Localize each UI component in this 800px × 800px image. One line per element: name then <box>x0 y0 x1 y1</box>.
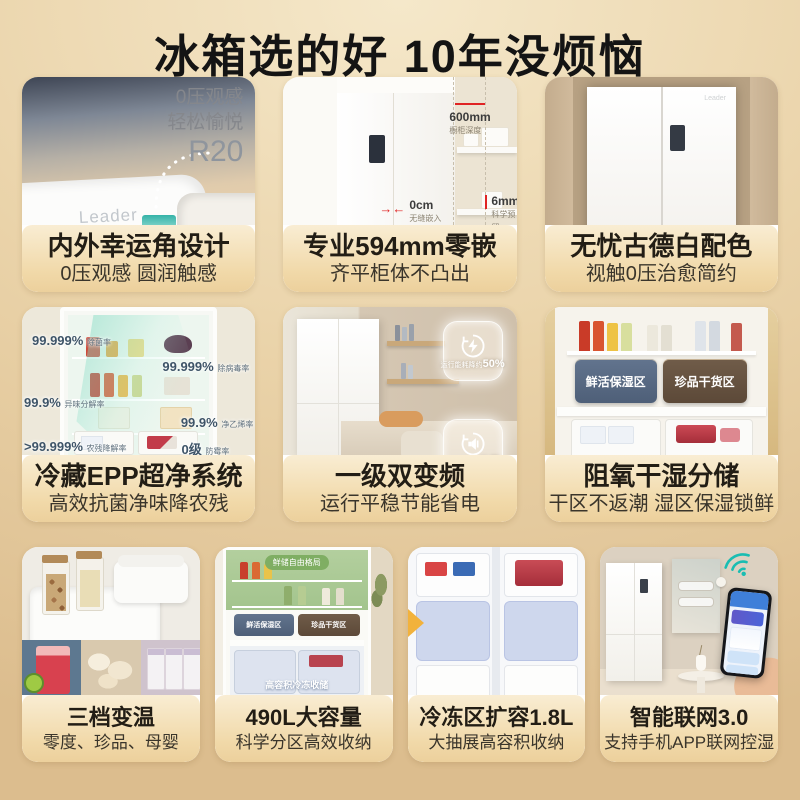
noise-badge: 运行约36分贝 <box>443 419 503 455</box>
cabinet-edge <box>768 307 778 455</box>
feature-title: 内外幸运角设计 <box>48 231 230 261</box>
stat-label: 除病毒率 <box>217 364 249 373</box>
bottle <box>593 321 604 351</box>
energy-badge-text: 运行能耗降约50% <box>441 360 505 370</box>
photo-breast-milk-bags <box>141 640 200 695</box>
milk-bag <box>165 648 183 690</box>
card-dry-wet-storage: 鲜活保湿区 珍品干货区 阻氧干湿分储 干区不返潮 湿区保湿锁鲜 <box>545 307 778 522</box>
photo-strip <box>22 640 200 695</box>
wood-shelf <box>387 379 459 384</box>
dry-zone-label: 珍品干货区 <box>298 614 360 636</box>
caption-epp-clean: 冷藏EPP超净系统 高效抗菌净味降农残 <box>22 455 255 522</box>
wall-shelf <box>457 147 517 153</box>
freezer-bin <box>504 553 578 597</box>
badge-value: 50% <box>483 358 505 370</box>
stat-label: 防霉率 <box>205 447 229 455</box>
book <box>395 325 400 341</box>
bottle <box>709 321 720 351</box>
bottle <box>661 325 672 351</box>
flush-value: 0cm <box>409 198 433 212</box>
book <box>402 327 407 341</box>
depth-label: 橱柜深度 <box>449 124 490 137</box>
feature-row-2: 99.999% 除菌率 99.999% 除病毒率 99.9% 异味分解率 99.… <box>22 307 778 522</box>
caption-dry-wet: 阻氧干湿分储 干区不返潮 湿区保湿锁鲜 <box>545 455 778 522</box>
feature-title: 490L大容量 <box>246 705 362 731</box>
white-fungus <box>81 640 140 695</box>
zone-label-text: 珍品干货区 <box>675 373 735 390</box>
dry-wet-photo: 鲜活保湿区 珍品干货区 <box>545 307 778 455</box>
drawer-scene <box>22 547 200 640</box>
depth-value: 600mm <box>449 110 490 124</box>
milk-bag <box>147 648 165 690</box>
page-title: 冰箱选的好 10年没烦恼 <box>0 0 800 77</box>
feature-subtitle: 视触0压治愈简约 <box>586 262 737 286</box>
control-panel <box>670 125 685 151</box>
card-dual-inverter: 运行能耗降约50% 运行约36分贝 一级双变频 运行平稳节能省电 <box>283 307 516 522</box>
card-zero-embed: 600mm 橱柜深度 6mm 科学预留 →← 0cm 无缝嵌入 专业594mm零… <box>283 77 516 292</box>
feature-title: 专业594mm零嵌 <box>303 231 497 261</box>
stat-value: 99.999% <box>32 333 83 348</box>
stat-label: 除菌率 <box>87 338 111 347</box>
bottle <box>336 588 344 605</box>
frozen-pack <box>608 426 634 444</box>
cabinet-top <box>337 77 455 94</box>
book <box>408 365 413 379</box>
stat-label: 异味分解率 <box>65 400 105 409</box>
meat <box>309 655 343 667</box>
depth-marker: 600mm 橱柜深度 <box>449 111 490 137</box>
capacity-photo: 鲜储自由格局 鲜活保湿区 珍品干货区 高容积冷冻收储 <box>215 547 393 695</box>
hanging-ball <box>716 577 726 587</box>
box-lid <box>118 555 184 567</box>
caption-capacity: 490L大容量 科学分区高效收纳 <box>215 695 393 762</box>
freezer-bin <box>416 553 490 597</box>
stat-value: 99.999% <box>162 359 213 374</box>
photo-delicacy-fungus <box>81 640 140 695</box>
freezer-label-text: 高容积冷冻收储 <box>265 680 328 690</box>
meat <box>676 425 716 443</box>
translucent-drawer <box>504 601 578 661</box>
speech-bubble <box>678 597 714 607</box>
card-smart-connect: 智能联网3.0 支持手机APP联网控湿 <box>600 547 778 762</box>
bottle <box>621 323 632 351</box>
photo-zero-degree-drink <box>22 640 81 695</box>
card-freezer-expansion: 冷冻区扩容1.8L 大抽展高容积收纳 <box>408 547 586 762</box>
app-card <box>725 664 758 676</box>
flush-label: 无缝嵌入 <box>409 212 441 225</box>
stat-label: 农残降解率 <box>87 444 127 453</box>
feature-title: 冷藏EPP超净系统 <box>35 461 243 491</box>
annotation-line: 0压观感 <box>167 85 243 110</box>
low-noise-icon <box>459 430 487 455</box>
feature-title: 无忧古德白配色 <box>570 231 752 261</box>
freezer-photo <box>408 547 586 695</box>
app-card <box>727 650 760 665</box>
feature-subtitle: 0压观感 圆润触感 <box>60 262 217 286</box>
zone-label-text: 鲜活保湿区 <box>586 373 646 390</box>
feature-row-3: 三档变温 零度、珍品、母婴 鲜储自由格局 <box>22 547 778 762</box>
stat-mildew: 0级 防霉率 <box>181 439 229 455</box>
lime-wedge <box>24 673 44 693</box>
control-panel <box>369 135 385 163</box>
feature-subtitle: 高效抗菌净味降农残 <box>49 492 229 516</box>
zero-embed-photo: 600mm 橱柜深度 6mm 科学预留 →← 0cm 无缝嵌入 <box>283 77 516 225</box>
dual-inverter-photo: 运行能耗降约50% 运行约36分贝 <box>283 307 516 455</box>
freezer-label: 高容积冷冻收储 <box>230 678 364 691</box>
pasta <box>80 570 100 607</box>
annotation-line: 轻松愉悦 <box>167 110 243 135</box>
ice-cream-box <box>425 562 447 576</box>
badge-prefix: 运行能耗降约 <box>441 362 483 369</box>
meat <box>147 436 177 449</box>
shelf <box>232 606 362 608</box>
feature-title: 智能联网3.0 <box>630 705 749 731</box>
speech-bubble <box>678 581 714 591</box>
radius-value: R20 <box>167 135 243 169</box>
feature-subtitle: 齐平柜体不凸出 <box>330 262 470 286</box>
flush-marker: 0cm 无缝嵌入 <box>409 199 441 225</box>
caption-freezer-expansion: 冷冻区扩容1.8L 大抽展高容积收纳 <box>408 695 586 762</box>
book <box>401 363 406 379</box>
side-table <box>678 659 724 693</box>
plant <box>371 571 391 617</box>
glass-shelf <box>567 351 756 355</box>
door-seam <box>634 563 635 681</box>
fresh-zone-label: 鲜储自由格局 <box>273 558 321 567</box>
stat-value: 99.9% <box>24 395 61 410</box>
control-panel <box>640 579 648 593</box>
fresh-zone-pill: 鲜储自由格局 <box>265 555 329 570</box>
stat-value: 0级 <box>181 442 201 455</box>
stat-sterilization: 99.999% 除菌率 <box>32 333 111 348</box>
lidded-box <box>114 561 188 603</box>
corner-design-photo: Leader 0压观感 轻松愉悦 R20 <box>22 77 255 225</box>
milk-bag <box>183 648 200 690</box>
wall-poster <box>672 559 720 633</box>
caption-white-color: 无忧古德白配色 视触0压治愈简约 <box>545 225 778 292</box>
stat-value: 99.9% <box>181 415 218 430</box>
stat-ethylene: 99.9% 净乙烯率 <box>181 415 254 430</box>
freezer-drawer <box>571 419 661 455</box>
gap-marker-line <box>485 195 487 209</box>
feature-subtitle: 零度、珍品、母婴 <box>43 732 179 753</box>
depth-arrow <box>455 103 485 105</box>
center-divider <box>492 547 500 695</box>
book <box>409 324 414 341</box>
bottle <box>240 562 248 579</box>
smart-connect-photo <box>600 547 778 695</box>
bottle <box>695 321 706 351</box>
gap-value: 6mm <box>491 194 516 208</box>
app-icon-grid <box>728 626 762 651</box>
fridge-interior: 鲜储自由格局 鲜活保湿区 珍品干货区 高容积冷冻收储 <box>223 547 371 695</box>
stat-odor: 99.9% 异味分解率 <box>24 395 105 410</box>
caption-corner-design: 内外幸运角设计 0压观感 圆润触感 <box>22 225 255 292</box>
energy-label <box>142 215 176 225</box>
stool <box>401 431 443 455</box>
white-color-photo: Leader <box>545 77 778 225</box>
expand-arrow-icon <box>408 609 424 637</box>
jar-lid <box>42 555 68 563</box>
dry-zone-label: 珍品干货区 <box>663 359 747 403</box>
energy-badge: 运行能耗降约50% <box>443 321 503 381</box>
bottle <box>298 586 306 605</box>
brand-logo: Leader <box>78 205 138 225</box>
fridge <box>606 563 662 681</box>
door-seam <box>606 634 662 635</box>
temp-zones-photo <box>22 547 200 695</box>
bottle <box>731 323 742 351</box>
caption-temp-zones: 三档变温 零度、珍品、母婴 <box>22 695 200 762</box>
bottle <box>252 562 260 579</box>
flush-arrows: →← <box>379 201 405 216</box>
table-stem <box>697 677 705 693</box>
bottle <box>607 323 618 351</box>
cabinet-left <box>283 77 338 225</box>
fresh-zone: 鲜储自由格局 <box>226 550 368 610</box>
feature-subtitle: 支持手机APP联网控湿 <box>604 732 774 753</box>
stat-value: >99.999% <box>24 439 83 454</box>
card-white-color: Leader 无忧古德白配色 视触0压治愈简约 <box>545 77 778 292</box>
guide-line <box>453 77 454 225</box>
white-fridge: Leader <box>587 87 736 225</box>
meat <box>720 428 740 442</box>
feature-subtitle: 运行平稳节能省电 <box>320 492 480 516</box>
bottle <box>647 325 658 351</box>
cat <box>379 411 423 427</box>
stat-pesticide: >99.999% 农残降解率 <box>24 439 127 454</box>
freezer-drawer <box>665 419 753 455</box>
door-seam <box>338 319 339 455</box>
zone-label-text: 鲜活保湿区 <box>246 620 281 630</box>
wet-zone-label: 鲜活保湿区 <box>234 614 294 636</box>
app-header <box>730 590 769 610</box>
wood-shelf <box>387 341 445 346</box>
feature-subtitle: 科学分区高效收纳 <box>236 732 372 753</box>
caption-dual-inverter: 一级双变频 运行平稳节能省电 <box>283 455 516 522</box>
feature-row-1: Leader 0压观感 轻松愉悦 R20 内外幸运角设计 0压观感 圆润触感 <box>22 77 778 292</box>
jar-nuts <box>42 561 70 615</box>
caption-smart-connect: 智能联网3.0 支持手机APP联网控湿 <box>600 695 778 762</box>
lower-drawer <box>416 665 490 695</box>
door-seam <box>661 87 663 225</box>
feature-subtitle: 大抽展高容积收纳 <box>428 732 564 753</box>
brand-logo-small: Leader <box>704 95 726 102</box>
shelf <box>232 580 362 582</box>
cabinet-edge <box>545 307 555 455</box>
translucent-drawer <box>416 601 490 661</box>
bottle <box>322 588 330 605</box>
wet-zone-label: 鲜活保湿区 <box>575 359 657 403</box>
card-capacity: 鲜储自由格局 鲜活保湿区 珍品干货区 高容积冷冻收储 <box>215 547 393 762</box>
lower-drawer <box>504 665 578 695</box>
epp-clean-photo: 99.999% 除菌率 99.999% 除病毒率 99.9% 异味分解率 99.… <box>22 307 255 455</box>
jar-pasta <box>76 557 104 611</box>
bottle <box>284 586 292 605</box>
vase <box>696 655 706 671</box>
stat-label: 净乙烯率 <box>221 420 253 429</box>
meat <box>515 560 563 586</box>
jar-lid <box>76 551 102 559</box>
app-screen <box>723 590 769 676</box>
card-temp-zones: 三档变温 零度、珍品、母婴 <box>22 547 200 762</box>
feature-title: 三档变温 <box>67 705 155 731</box>
gap-marker: 6mm 科学预留 <box>491 195 516 225</box>
corner-annotation: 0压观感 轻松愉悦 R20 <box>167 85 243 169</box>
app-banner <box>731 609 764 626</box>
caption-zero-embed: 专业594mm零嵌 齐平柜体不凸出 <box>283 225 516 292</box>
card-epp-clean: 99.999% 除菌率 99.999% 除病毒率 99.9% 异味分解率 99.… <box>22 307 255 522</box>
frozen-pack <box>580 426 606 444</box>
freezer-zone: 高容积冷冻收储 <box>230 646 364 695</box>
bottle <box>579 321 590 351</box>
card-corner-design: Leader 0压观感 轻松愉悦 R20 内外幸运角设计 0压观感 圆润触感 <box>22 77 255 292</box>
smartphone <box>720 587 773 679</box>
zone-label-text: 珍品干货区 <box>311 620 346 630</box>
feature-subtitle: 干区不返潮 湿区保湿锁鲜 <box>549 492 775 516</box>
door-seam <box>297 403 379 404</box>
ice-cream-box <box>453 562 475 576</box>
gap-label: 科学预留 <box>491 208 516 225</box>
nuts <box>46 574 66 611</box>
lightning-bolt-icon <box>459 332 487 360</box>
feature-title: 冷冻区扩容1.8L <box>419 705 573 731</box>
feature-title: 阻氧干湿分储 <box>583 461 739 491</box>
feature-title: 一级双变频 <box>335 461 465 491</box>
divider <box>557 407 766 416</box>
stat-virus: 99.999% 除病毒率 <box>162 359 249 374</box>
